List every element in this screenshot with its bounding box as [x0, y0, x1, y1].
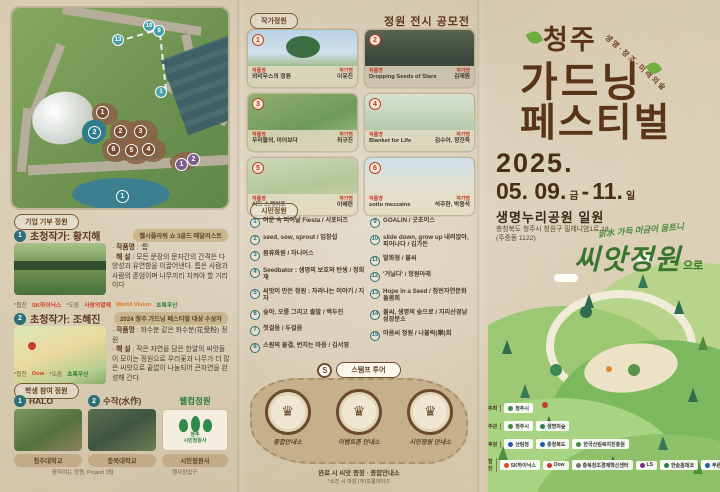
festival-title-line2: 페스티벌 [520, 92, 672, 148]
event-year: 2025. [496, 148, 574, 179]
map-marker-route: 1 [155, 86, 167, 98]
artist-name: 이유진 [337, 74, 353, 81]
student-garden-1: 1 HALO 청주대학교 [14, 395, 82, 467]
work-title: Blanket for Life [369, 138, 411, 145]
garden-photo [88, 409, 156, 451]
work-title: sotto mezzaine [369, 202, 411, 209]
start-date: 05. 09. [496, 178, 566, 205]
credit-label: 주최 [488, 405, 501, 412]
logo-mark [705, 463, 710, 468]
artist-name: 초청작가: 조혜진 [30, 311, 101, 326]
credit-label: 후원 [488, 441, 501, 448]
venue-address-line2: (주중동 1122) [496, 232, 536, 242]
list-item: 6숲아, 오름 그리고 출발 / 백두진 [250, 309, 368, 320]
stamp-circle: ♛ [407, 389, 453, 435]
end-date: 11. [592, 178, 623, 205]
card-caption: 작품명Dropping Seeds of Stars 작가명김재원 [365, 66, 474, 87]
logo-chip: Dow [543, 461, 569, 470]
sponsor-logo-dow: Dow [32, 371, 44, 377]
logo-mark [547, 463, 552, 468]
seed-garden-text: 씨앗정원 [574, 238, 681, 278]
map-marker-route: 9 [153, 25, 165, 37]
artist-name: 최규진 [337, 138, 353, 145]
crown-stamp-icon: ♛ [424, 404, 437, 420]
logo-mark [508, 406, 513, 411]
list-item: 10slide down, grow up 내려앉아, 피어나다 / 김가든 [370, 234, 472, 250]
crown-stamp-icon: ♛ [353, 404, 366, 420]
list-item: 11발화점 / 불씨 [370, 255, 472, 266]
park-aerial-map: 13 10 9 1 1 2 3 4 5 6 2 1 1 2 [12, 8, 228, 208]
date-dash: - [582, 178, 590, 205]
fold-crease-left [237, 0, 245, 492]
stamp-station: ♛ 이벤트존 안내소 [336, 389, 382, 446]
garden-photo [14, 243, 106, 295]
trees-icon [179, 416, 212, 432]
crown-stamp-icon: ♛ [281, 404, 294, 420]
tree [580, 306, 592, 318]
logo-chip: 청주시 [504, 403, 533, 413]
station-label: 시민정원 안내소 [410, 437, 452, 446]
list-item: 2seed, sow, sprout / 임창섭 [250, 234, 368, 245]
tree [628, 364, 640, 376]
logo-mark [504, 463, 509, 468]
tree [674, 300, 684, 314]
stamp-tour-area: ♛ 종합안내소 ♛ 이벤트존 안내소 ♛ 시민정원 안내소 [250, 378, 468, 464]
garden-card-3: 3 작품명우리들의, 이어보다 작가명최규진 [248, 94, 357, 151]
help-label: *도움 [66, 300, 79, 309]
stamp-station: ♛ 종합안내소 [265, 389, 311, 446]
tree [520, 384, 530, 398]
logo-mark [576, 442, 581, 447]
map-marker-brown: 1 [96, 106, 109, 119]
logo-mark [640, 463, 645, 468]
logo-mark [508, 442, 513, 447]
credit-label: 협찬 [488, 458, 497, 472]
work-title: Dropping Seeds of Stars [369, 74, 437, 81]
list-item: 9GOALIN / 굿초이스 [370, 217, 472, 228]
list-item: 3봄류화원 / 자니어스 [250, 250, 368, 261]
logo-chip: 푸른건설 [701, 460, 720, 470]
calligraphy-line: 맑水 가득 머금어 움트니 [598, 220, 685, 239]
start-day: 금 [569, 187, 578, 202]
tree-icon [203, 419, 212, 432]
figure [542, 402, 548, 408]
event-dates: 05. 09. 금 - 11. 일 [496, 178, 635, 205]
logo-chip: 충청북도 [536, 439, 569, 449]
citizen-gardener-logo: 청주 시민정원사 [162, 409, 228, 451]
festival-brochure: 13 10 9 1 1 2 3 4 5 6 2 1 1 2 기업 기부 정원 1… [0, 0, 720, 492]
card-number-badge: 3 [252, 98, 264, 110]
work-title: '틈' [141, 244, 150, 251]
tree-icon [179, 419, 188, 432]
stamp-tour-header: S 스탬프 투어 [250, 362, 468, 378]
sponsor-logo-sk: SK하이닉스 [32, 300, 61, 309]
student-garden-2: 2 수작(水作) 충북대학교 [88, 395, 156, 467]
credit-row-host: 주최 청주시 [488, 403, 533, 413]
end-day: 일 [626, 187, 635, 202]
credit-row-organizer: 주관 청주시 생명의숲 [488, 421, 569, 431]
garden-card-6: 6 작품명sotto mezzaine 작가명석주한, 박용석 [365, 158, 474, 215]
citizen-garden-list-right: 9GOALIN / 굿초이스 10slide down, grow up 내려앉… [370, 217, 472, 341]
fold-crease-right [477, 0, 485, 492]
student-garden-title: HALO [29, 396, 53, 406]
tree [658, 436, 668, 450]
work-title: 우리들의, 이어보다 [252, 138, 298, 145]
artist-name: 석주한, 박용석 [435, 202, 470, 209]
exhibition-title: 정원 전시 공모전 [300, 13, 470, 29]
artist-name: 김수아, 정진욱 [435, 138, 470, 145]
citizen-garden-list-left: 1여운 속 피어날 Fiesta / 서포터즈 2seed, sow, spro… [250, 217, 368, 353]
map-path [17, 108, 33, 173]
list-item: 4Seedbator : 생명의 보호와 탄생 / 정희재 [250, 267, 368, 283]
tree-silhouette [286, 36, 320, 58]
list-item: 15마음씨 정원 / 나불락(樂)회 [370, 330, 472, 341]
stamp-circle: ♛ [336, 389, 382, 435]
card-caption: 작품명뫼비우스의 정원 작가명이유진 [248, 66, 357, 87]
seed-garden-calligraphy: 씨앗정원 으로 [574, 238, 703, 278]
credit-row-sponsors: 협찬 SK하이닉스 Dow 충북창조경제혁신센터 LS 한솔홈데코 푸른건설 [488, 458, 720, 472]
award-badge: 2024 청주 가드닝 페스티벌 대상 수상자 [114, 312, 228, 325]
welcome-garden: 웰컴정원 청주 시민정원사 시민정원사 [162, 395, 228, 467]
stamp-station: ♛ 시민정원 안내소 [407, 389, 453, 446]
card-number-badge: 1 [252, 34, 264, 46]
leaf-icon [526, 29, 544, 47]
tree [688, 388, 698, 402]
map-marker-brown: 3 [134, 125, 147, 138]
helper-logo: World Vision [116, 302, 151, 308]
map-path [62, 8, 202, 36]
list-item: 8소원의 물결, 번지는 마음 / 김서영 [250, 342, 368, 353]
school-caption: 청주대학교 [14, 454, 82, 467]
garden-card-2: 2 작품명Dropping Seeds of Stars 작가명김재원 [365, 30, 474, 87]
footnote-moving-garden: 움직이는 정원, Project 3팀 [52, 468, 114, 476]
sponsor-label: *협찬 [14, 369, 27, 378]
logo-chip: 청주시 [504, 421, 533, 431]
welcome-garden-title: 웰컴정원 [179, 395, 210, 407]
logo-mark [540, 424, 545, 429]
tree-icon [191, 416, 200, 432]
logo-mark [540, 442, 545, 447]
artist-garden-badge: 작가정원 [250, 13, 298, 29]
stamp-note-fine-print: *소진 시 마감 (주)프롬데이즈 [250, 478, 468, 485]
invited-artist-2-header: 2 초청작가: 조혜진 2024 청주 가드닝 페스티벌 대상 수상자 [14, 311, 228, 326]
work-label: 작품명 [116, 244, 135, 251]
artist-name: 김재원 [454, 74, 470, 81]
card-number-badge: 5 [252, 162, 264, 174]
school-caption: 충북대학교 [88, 454, 156, 467]
garden-card-4: 4 작품명Blanket for Life 작가명김수아, 정진욱 [365, 94, 474, 151]
list-item: 7첫걸음 / 두걸음 [250, 325, 368, 336]
map-marker-brown: 5 [125, 144, 138, 157]
footnote-entrance: 행사장입구 [172, 468, 197, 476]
map-marker-purple: 2 [187, 153, 200, 166]
welcome-caption: 시민정원사 [162, 454, 228, 467]
artist-name: 이혜련 [337, 202, 353, 209]
card-number-badge: 4 [369, 98, 381, 110]
desc-label: 해 설 [116, 346, 130, 353]
card-caption: 작품명Blanket for Life 작가명김수아, 정진욱 [365, 130, 474, 151]
list-item: 1여운 속 피어날 Fiesta / 서포터즈 [250, 217, 368, 228]
number-badge: 2 [88, 395, 100, 407]
number-badge: 1 [14, 395, 26, 407]
logo-chip: LS [636, 461, 657, 470]
number-badge: 1 [14, 230, 26, 242]
list-item: 13Hope in a Seed / 청린자연문화돌봄회 [370, 288, 472, 304]
award-badge: 첼시플라워 쇼 3골드 메달리스트 [133, 229, 228, 242]
help-label: *도움 [49, 369, 62, 378]
station-label: 종합안내소 [273, 437, 301, 446]
helper-logo: 사랑의열매 [84, 300, 111, 309]
tree [502, 340, 512, 354]
map-marker-brown: 2 [114, 125, 127, 138]
garden-card-1: 1 작품명뫼비우스의 정원 작가명이유진 [248, 30, 357, 87]
credit-label: 주관 [488, 423, 501, 430]
sponsor-label: *협찬 [14, 300, 27, 309]
desc-label: 해 설 [116, 254, 130, 261]
logo-chip: 산림청 [504, 439, 533, 449]
stamp-icon: S [317, 363, 332, 378]
list-item: 12'거닐다' / 정원아래 [370, 271, 472, 282]
stamp-tour-title: 스탬프 투어 [336, 362, 400, 378]
number-badge: 2 [14, 313, 26, 325]
helper-logo: 초록우산 [67, 369, 88, 378]
stamp-note: 완료 시 씨앗 증정 · 종합안내소 [250, 468, 468, 477]
student-garden-title: 수작(水作) [103, 395, 141, 407]
logo-mark [576, 463, 581, 468]
list-item: 14불씨, 생명의 숲으로 / 지리산경남 성장분소 [370, 309, 472, 325]
stamp-circle: ♛ [265, 389, 311, 435]
list-item: 5씨앗이 만든 정원 : 자라나는 이야기 / 지자 [250, 288, 368, 304]
map-marker-teal: 2 [88, 126, 101, 139]
sponsor-row: *협찬 SK하이닉스 *도움 사랑의열매 World Vision 초록우산 [14, 300, 230, 309]
garden-photo [14, 409, 82, 451]
work-label: 작품명 [116, 327, 135, 334]
logo-chip: 한국산림복지진흥원 [572, 439, 628, 449]
tree [550, 364, 562, 376]
building [161, 33, 228, 136]
card-number-badge: 6 [369, 162, 381, 174]
card-caption: 작품명우리들의, 이어보다 작가명최규진 [248, 130, 357, 151]
logo-chip: 생명의숲 [536, 421, 569, 431]
invited-artist-1-body: · 작품명 : '틈' · 해 설 : 모든 문장의 문자간의 간격은 다양성과… [14, 243, 230, 295]
map-marker-brown: 4 [142, 143, 155, 156]
invited-artist-1-header: 1 초청작가: 황지해 첼시플라워 쇼 3골드 메달리스트 [14, 228, 228, 243]
logo-mark [508, 424, 513, 429]
logo-chip: SK하이닉스 [500, 460, 540, 470]
logo-text: 시민정원사 [183, 439, 206, 445]
artist-name: 초청작가: 황지해 [30, 228, 101, 243]
card-caption: 작품명sotto mezzaine 작가명석주한, 박용석 [365, 194, 474, 215]
tree [698, 336, 708, 350]
map-marker-route: 13 [112, 34, 124, 46]
helper-logo: 초록우산 [156, 300, 177, 309]
seed-garden-illustration [488, 248, 720, 492]
map-marker-teal: 1 [116, 190, 129, 203]
credit-row-support: 후원 산림청 충청북도 한국산림복지진흥원 [488, 439, 629, 449]
work-title: 뫼비우스의 정원 [252, 74, 291, 81]
logo-chip: 충북창조경제혁신센터 [572, 460, 633, 470]
map-marker-brown: 6 [107, 143, 120, 156]
station-label: 이벤트존 안내소 [338, 437, 380, 446]
figure [606, 366, 612, 372]
logo-mark [664, 463, 669, 468]
work-description: · 작품명 : '틈' · 해 설 : 모든 문장의 문자간의 간격은 다양성과… [112, 243, 230, 295]
sponsor-row: *협찬 Dow *도움 초록우산 [14, 369, 230, 378]
logo-chip: 한솔홈데코 [660, 460, 698, 470]
card-number-badge: 2 [369, 34, 381, 46]
seed-garden-suffix: 으로 [683, 257, 703, 273]
